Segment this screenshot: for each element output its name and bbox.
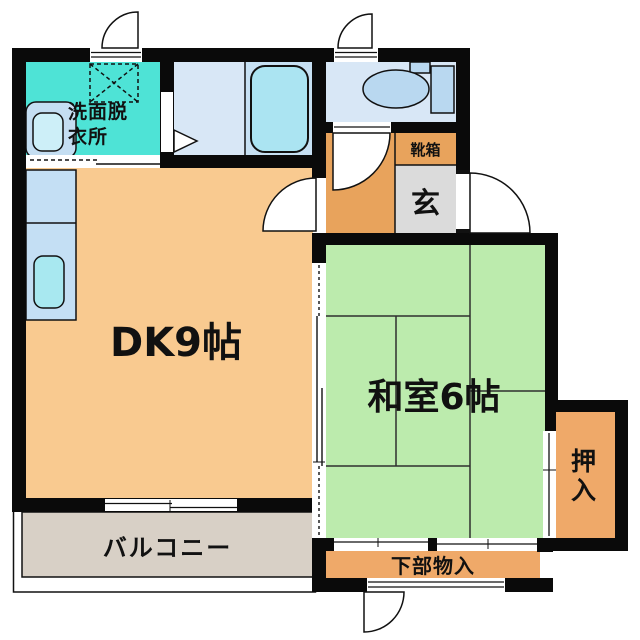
japanese-room-label: 和室6帖: [316, 368, 552, 420]
dining-kitchen-label: DK9帖: [56, 310, 296, 368]
storage-door-arc: [364, 592, 404, 632]
toilet-lid: [410, 62, 430, 73]
washroom-dk-sliding-door: [26, 155, 160, 168]
toilet-entry-threshold: [334, 48, 378, 62]
closet-sliding-door: [543, 431, 556, 538]
closet-label: 押入: [569, 448, 598, 506]
entrance-door-opening: [456, 170, 470, 233]
toilet-tank: [431, 66, 454, 113]
bathtub-icon: [251, 66, 308, 152]
floor-plan: 洗面脱衣所 靴箱 玄 DK9帖 和室6帖 押入 バルコニー 下部物入: [0, 0, 640, 640]
washroom-entry-threshold: [90, 48, 142, 62]
toilet-hallway-threshold: [333, 122, 391, 133]
toilet-door-arc: [338, 14, 372, 48]
shoe-box-label: 靴箱: [395, 139, 456, 160]
toilet-bowl: [363, 70, 429, 108]
kitchen-sink-icon: [34, 256, 64, 308]
under-storage-label: 下部物入: [326, 550, 540, 579]
entrance-door-arc: [470, 173, 530, 233]
balcony-label: バルコニー: [22, 528, 313, 563]
washroom-door-arc: [102, 12, 138, 48]
kitchen-counter: [26, 170, 76, 320]
under-storage-threshold: [367, 578, 505, 592]
washroom-label: 洗面脱衣所: [68, 100, 140, 149]
washbasin-bowl: [33, 113, 63, 151]
balcony-sliding-window: [105, 499, 237, 511]
entrance-label: 玄: [395, 180, 456, 222]
